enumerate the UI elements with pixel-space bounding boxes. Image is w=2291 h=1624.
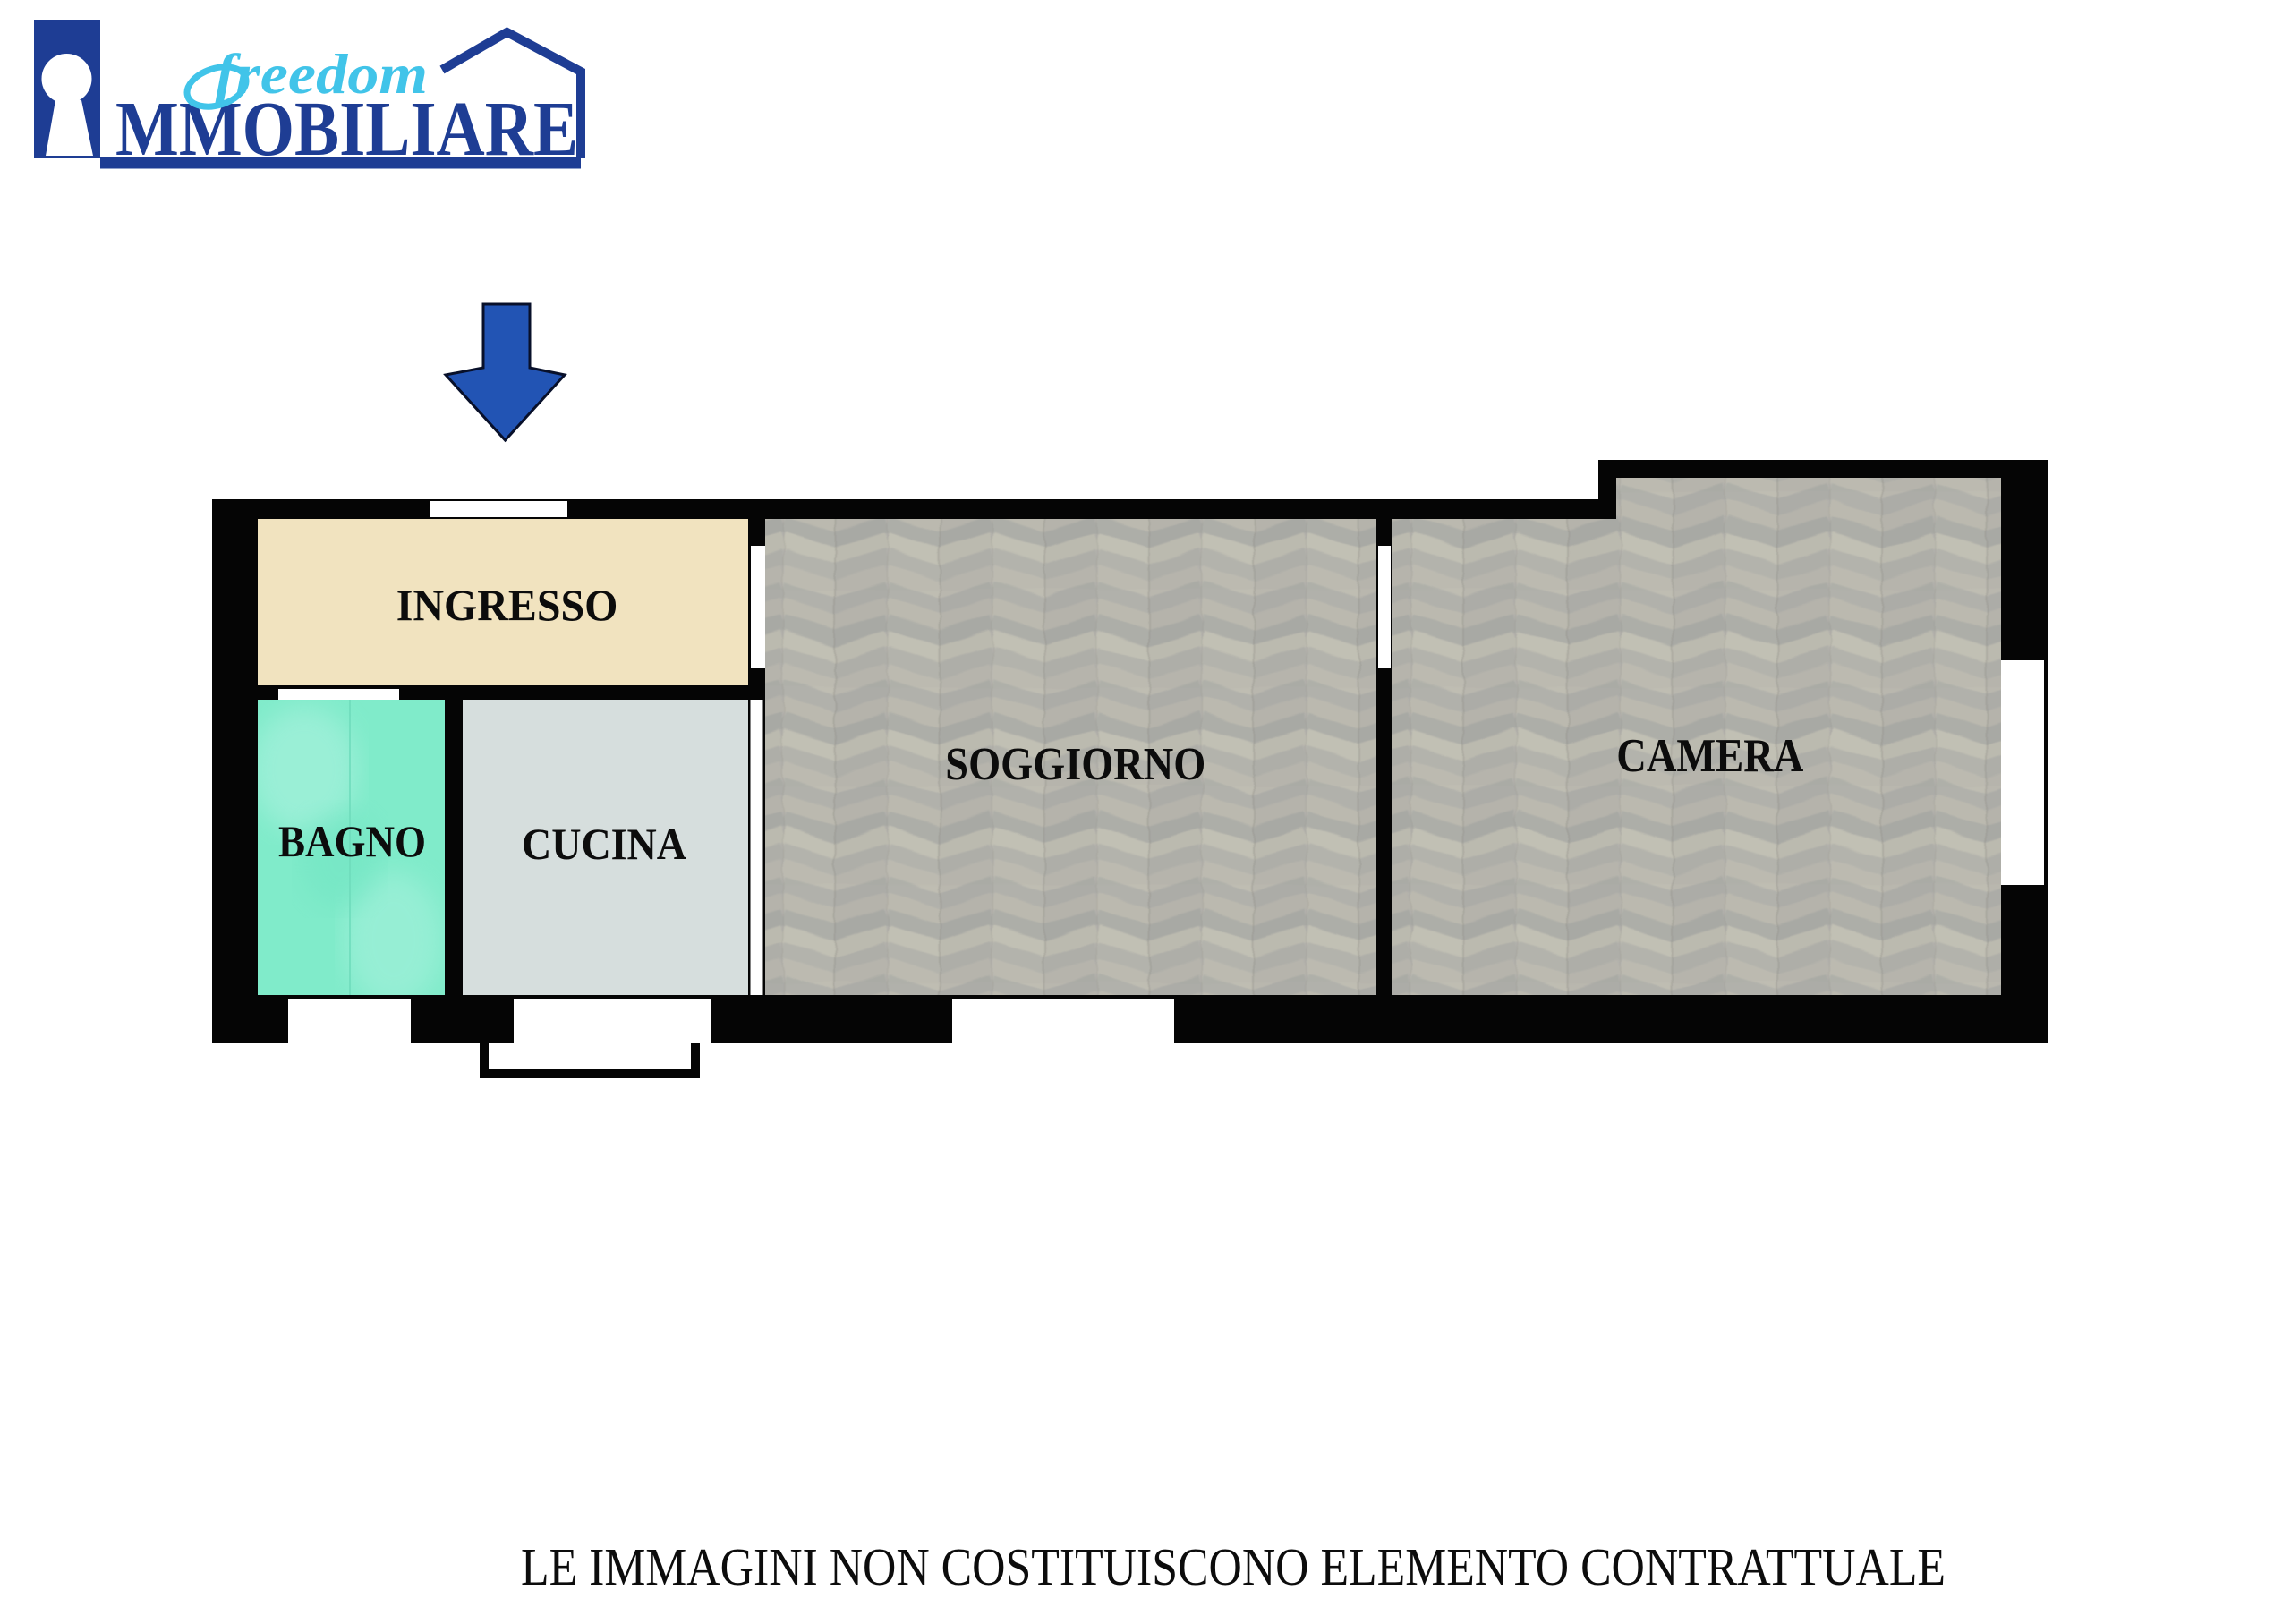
svg-text:BAGNO: BAGNO — [278, 816, 426, 866]
svg-text:SOGGIORNO: SOGGIORNO — [945, 739, 1205, 790]
svg-text:INGRESSO: INGRESSO — [396, 580, 618, 630]
svg-text:freedom: freedom — [215, 42, 428, 106]
svg-text:CUCINA: CUCINA — [522, 819, 686, 869]
svg-text:CAMERA: CAMERA — [1616, 730, 1803, 782]
svg-text:LE IMMAGINI NON COSTITUISCONO: LE IMMAGINI NON COSTITUISCONO ELEMENTO C… — [521, 1537, 1946, 1596]
